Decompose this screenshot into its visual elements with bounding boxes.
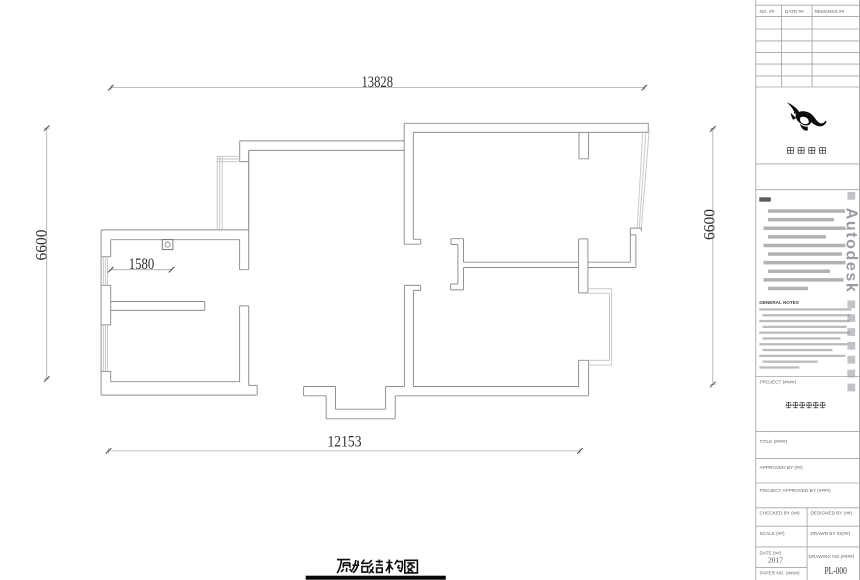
- svg-text:PROJECT APPROVED BY (####): PROJECT APPROVED BY (####): [760, 488, 832, 493]
- svg-text:CHECKED BY (##): CHECKED BY (##): [760, 511, 800, 516]
- svg-text:APPROVED BY (##): APPROVED BY (##): [760, 465, 804, 470]
- svg-text:PL-000: PL-000: [825, 565, 848, 577]
- svg-text:PAPER NO. (####): PAPER NO. (####): [760, 571, 800, 576]
- svg-text:6600: 6600: [34, 230, 51, 261]
- svg-text:GENERAL NOTES: GENERAL NOTES: [759, 300, 798, 305]
- svg-text:REMARKS ##: REMARKS ##: [815, 9, 845, 14]
- svg-text:12153: 12153: [328, 434, 362, 451]
- svg-text:■ Autodesk ■■■■■■■: ■ Autodesk ■■■■■■■: [843, 191, 860, 397]
- svg-text:DESIGNED BY (##): DESIGNED BY (##): [811, 511, 853, 516]
- svg-text:TITLE (####): TITLE (####): [760, 439, 788, 444]
- svg-text:2017: 2017: [768, 555, 783, 564]
- svg-text:DRAWN BY 02(##): DRAWN BY 02(##): [811, 531, 851, 536]
- svg-text:NO. ##: NO. ##: [760, 9, 775, 14]
- svg-text:13828: 13828: [362, 74, 394, 91]
- svg-text:SCALE (##): SCALE (##): [760, 531, 785, 536]
- svg-text:1580: 1580: [129, 256, 155, 273]
- svg-text:DRAWING NO.(####): DRAWING NO.(####): [809, 554, 855, 559]
- svg-text:PROJECT (####): PROJECT (####): [760, 380, 797, 385]
- svg-text:6600: 6600: [702, 209, 719, 240]
- svg-text:DATE ##: DATE ##: [785, 9, 804, 14]
